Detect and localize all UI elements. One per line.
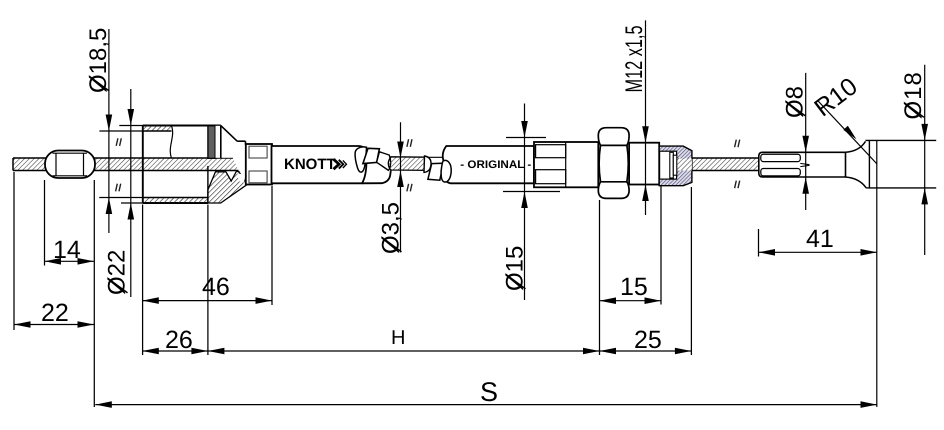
svg-text:H: H bbox=[391, 327, 405, 349]
svg-text:22: 22 bbox=[41, 299, 69, 327]
svg-text:25: 25 bbox=[634, 326, 662, 354]
svg-text:Ø22: Ø22 bbox=[104, 250, 131, 295]
svg-text:Ø18: Ø18 bbox=[900, 71, 927, 119]
svg-text:M12 x1,5: M12 x1,5 bbox=[621, 26, 648, 93]
svg-text:26: 26 bbox=[165, 326, 193, 354]
svg-text:KNOTT: KNOTT bbox=[284, 156, 336, 173]
svg-text:Ø3,5: Ø3,5 bbox=[378, 202, 405, 254]
svg-text:Ø15: Ø15 bbox=[502, 246, 529, 291]
svg-text:46: 46 bbox=[202, 273, 230, 301]
svg-text:14: 14 bbox=[53, 236, 81, 264]
svg-text:15: 15 bbox=[620, 273, 648, 301]
svg-text:S: S bbox=[480, 377, 498, 407]
svg-text:41: 41 bbox=[806, 225, 834, 253]
svg-text:- ORIGINAL -: - ORIGINAL - bbox=[460, 159, 531, 171]
